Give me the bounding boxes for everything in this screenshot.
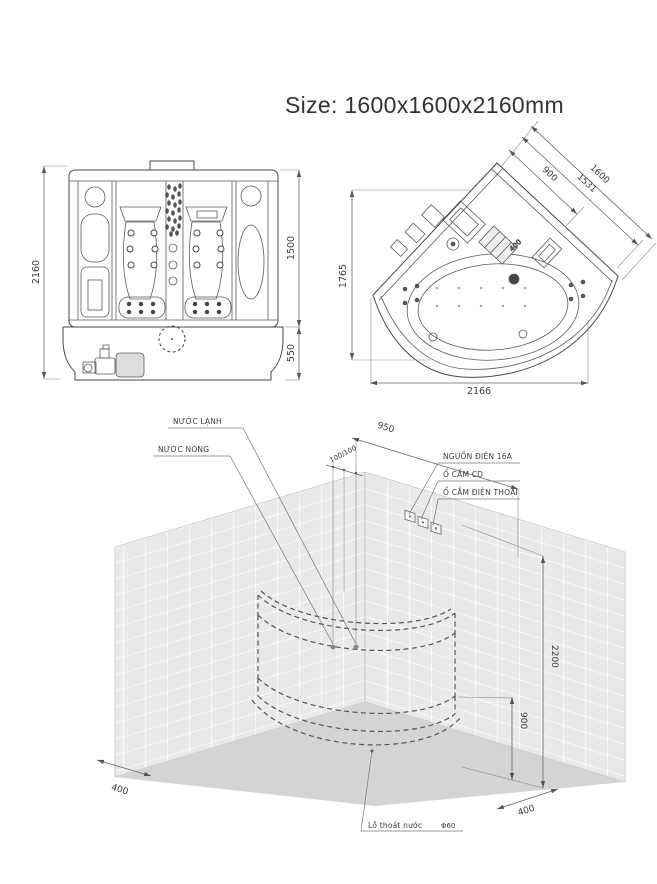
cd-socket-label: Ổ CẮM CD (443, 469, 483, 479)
right-side-panel (238, 186, 264, 299)
dim-base-height: 550 (286, 344, 297, 362)
cabin-top-lid (150, 161, 194, 170)
hot-water-point (331, 645, 336, 650)
hot-water-label: NƯỚC NÓNG (158, 445, 209, 454)
massage-jets (127, 230, 224, 314)
steam-column (165, 183, 182, 237)
cabin-outline (69, 170, 278, 327)
equipment-cluster: 400 (390, 201, 561, 284)
drain-label: Lỗ thoát nước (368, 821, 422, 830)
tub-jets (403, 280, 586, 341)
dim-total-height: 2160 (31, 260, 42, 284)
phone-socket-label: Ổ CẮM ĐIỆN THOẠI (443, 487, 518, 497)
front-view-dimensions: 2160 1500 550 (31, 166, 299, 380)
dim-depth: 1765 (338, 264, 349, 288)
dim-front-width: 2166 (467, 386, 491, 397)
drawing-canvas: 2160 1500 550 (0, 0, 657, 884)
installation-view: 100/100 950 NƯỚC LẠNH NƯỚC NÓNG (97, 417, 625, 831)
technical-drawing-page: Size: 1600x1600x2160mm (0, 0, 657, 884)
dim-cabin-height: 1500 (286, 236, 297, 260)
cabin-frame-lines (78, 181, 268, 320)
front-view: 2160 1500 550 (31, 161, 299, 380)
dim-equipment: 400 (508, 238, 523, 253)
pump-assembly (83, 345, 144, 377)
plan-outer-dimensions: 1765 2166 (338, 190, 588, 397)
dim-wall-offset: 950 (376, 421, 396, 436)
steam-column-controls (169, 244, 177, 285)
left-side-panel (81, 187, 109, 317)
dim-rim-height: 900 (518, 712, 528, 729)
drain-diameter-label: Φ60 (441, 822, 455, 830)
dim-left-clearance: 400 (110, 783, 130, 798)
dim-right-clearance: 400 (517, 804, 537, 819)
cold-water-point (354, 645, 359, 650)
cold-water-label: NƯỚC LẠNH (173, 417, 222, 426)
dim-pipe-spacing: 100/100 (328, 444, 358, 464)
size-title: Size: 1600x1600x2160mm (285, 92, 564, 119)
plan-outline (373, 163, 618, 377)
power-label: NGUỒN ĐIỆN 16A (443, 451, 513, 461)
dim-wall-height: 2200 (549, 645, 559, 668)
plan-view: 400 900 1531 1600 1765 (338, 121, 656, 397)
